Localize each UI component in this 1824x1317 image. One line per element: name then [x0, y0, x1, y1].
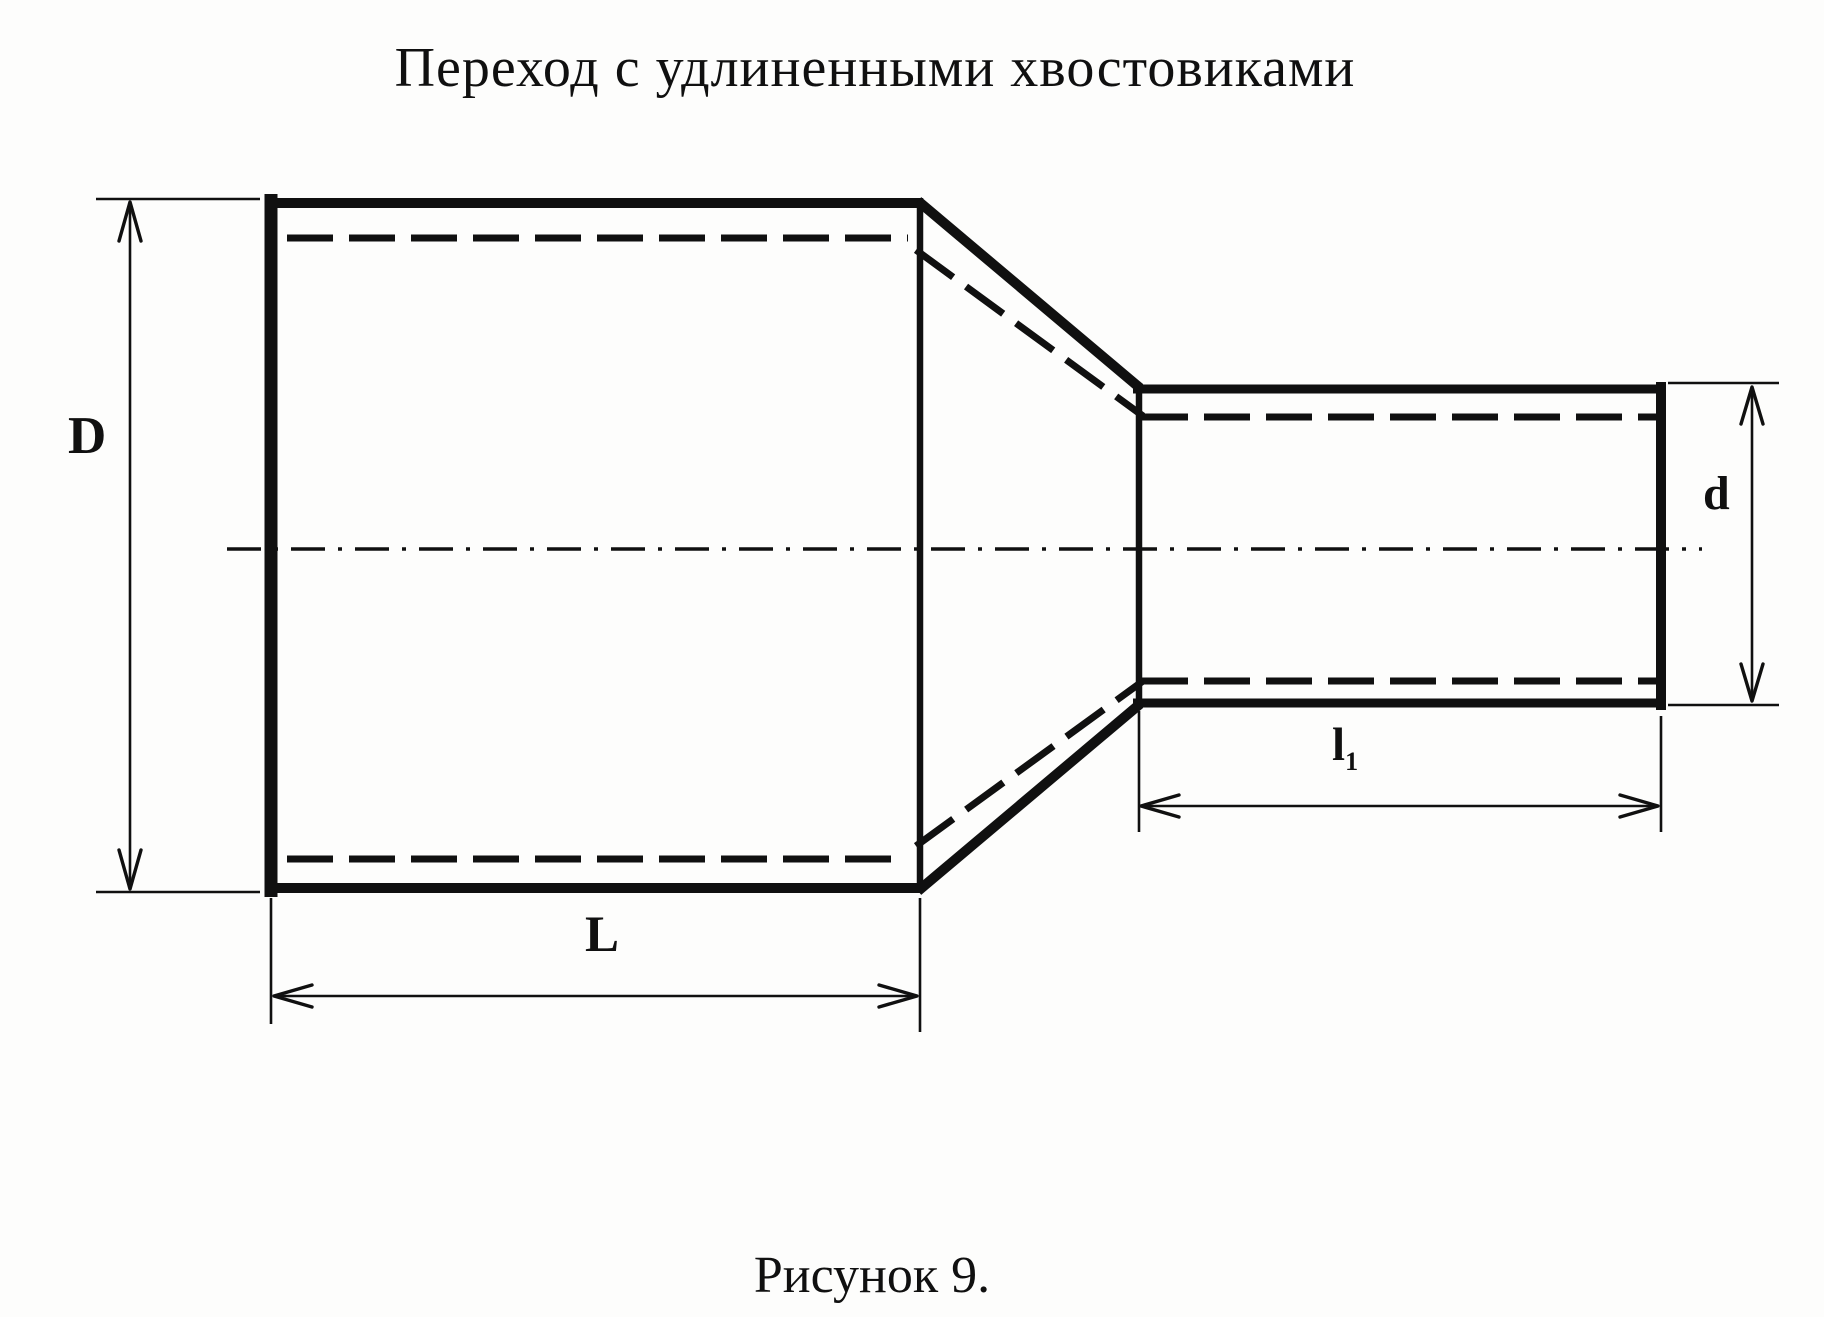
cone-bottom-edge — [918, 704, 1140, 891]
dimension-label-large-diameter: D — [68, 410, 106, 463]
figure-caption: Рисунок 9. — [642, 1246, 1102, 1305]
inner-wall-top-cone — [916, 250, 1143, 416]
dimension-label-large-length: L — [585, 910, 619, 961]
dimension-large-diameter — [96, 199, 260, 892]
small-length-subscript: 1 — [1345, 747, 1358, 776]
small-pipe-outline — [1133, 382, 1666, 710]
large-pipe-outline — [265, 194, 923, 897]
dimension-small-diameter — [1668, 383, 1779, 705]
small-length-symbol: l — [1332, 719, 1345, 771]
dimension-label-small-length: l1 — [1332, 722, 1358, 775]
dimension-small-length — [1139, 711, 1661, 832]
cone-top-edge — [918, 201, 1140, 388]
dimension-label-small-diameter: d — [1703, 470, 1730, 518]
technical-drawing-page: Переход с удлиненными хвостовиками — [0, 0, 1824, 1317]
inner-wall-bottom-cone — [916, 681, 1143, 846]
reducer-cone-outline — [918, 201, 1140, 891]
pipe-reducer-drawing — [0, 0, 1824, 1317]
